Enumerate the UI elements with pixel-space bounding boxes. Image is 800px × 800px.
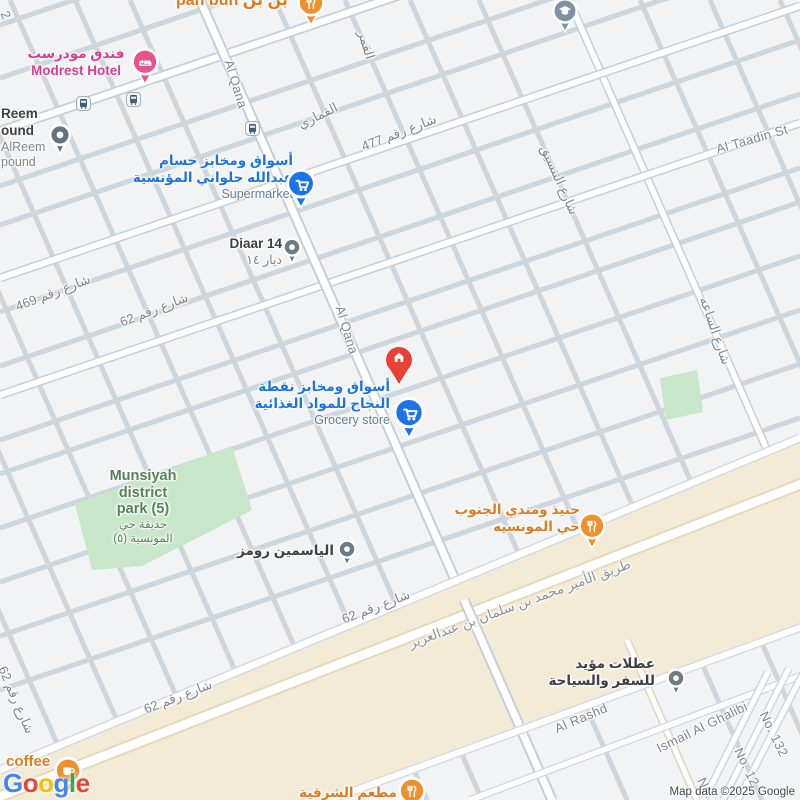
fork-icon bbox=[397, 777, 427, 800]
poi-primary-text: Reem bbox=[1, 106, 45, 123]
poi-secondary-text: المونسية (٥) bbox=[110, 532, 177, 546]
place-dot-icon bbox=[281, 237, 303, 265]
poi-label-otalat-moayad-travel[interactable]: عطلات مؤيدللسفر والسياحة bbox=[548, 656, 655, 690]
bus-stop-icon bbox=[245, 121, 260, 136]
poi-primary-text: للسفر والسياحة bbox=[548, 673, 655, 690]
pin-najah-grocery[interactable] bbox=[392, 397, 426, 440]
poi-primary-text: Modrest Hotel bbox=[27, 63, 124, 80]
bed-icon bbox=[130, 48, 160, 86]
street-label-street-469: شارع رقم 469 bbox=[13, 271, 92, 314]
poi-primary-text: Munsiyah bbox=[110, 468, 177, 485]
pin-otalat-moayad-travel[interactable] bbox=[665, 668, 687, 696]
google-logo-letter: G bbox=[3, 768, 23, 798]
poi-label-pan-bun[interactable]: pan bun بن بن bbox=[176, 0, 288, 11]
poi-primary-text: حي المونسيه bbox=[455, 519, 580, 536]
poi-label-hussam-supermarket[interactable]: أسواق ومخابز حسامعبدالله حلواني المؤنسية… bbox=[133, 153, 293, 202]
poi-primary-text: ound bbox=[1, 123, 45, 140]
street-label-al-taadin: Al Taadin St bbox=[714, 122, 789, 157]
pin-home-property[interactable] bbox=[383, 342, 415, 385]
poi-primary-text: عبدالله حلواني المؤنسية bbox=[133, 170, 293, 187]
poi-label-eastern-restaurant[interactable]: مطعم الشرقية bbox=[299, 785, 397, 800]
place-dot-icon bbox=[336, 539, 358, 567]
street-label-al-qana-north: Al Qana bbox=[222, 58, 251, 110]
poi-label-diaar-14[interactable]: Diaar 14ديار ١٤ bbox=[229, 236, 282, 269]
poi-label-alreem-compound[interactable]: ReemoundAlReempound bbox=[1, 106, 45, 171]
street-label-street-partial-2: 2 bbox=[0, 8, 14, 21]
pin-school[interactable] bbox=[551, 0, 579, 33]
street-label-prince-mohammed-bin-salman-road: طريق الأمير محمد بن سلمان بن عبدالعزيز bbox=[407, 556, 634, 651]
poi-primary-text: الياسمين رومز bbox=[237, 543, 334, 560]
street-label-al-qana-south: Al Qana bbox=[333, 304, 362, 356]
bus-stop-3[interactable] bbox=[245, 121, 260, 136]
poi-secondary-text: حديقة حي bbox=[110, 518, 177, 532]
street-label-street-62-d: شارع رقم 62 bbox=[340, 587, 413, 628]
grad-icon bbox=[551, 0, 579, 33]
poi-primary-text: فندق مودرست bbox=[27, 46, 124, 63]
poi-primary-text: Diaar 14 bbox=[229, 236, 282, 253]
poi-label-najah-grocery[interactable]: أسواق ومخابز نقطةالنجاح للمواد الغذائيةG… bbox=[255, 379, 390, 428]
poi-secondary-text: ديار ١٤ bbox=[229, 253, 282, 269]
street-label-al-qamar: القمر bbox=[354, 29, 378, 61]
google-logo-letter: e bbox=[76, 768, 90, 798]
fork-icon bbox=[296, 0, 326, 27]
map-canvas[interactable]: القمرالقماريشارع رقم 477Al Qanaشارع التن… bbox=[0, 0, 800, 800]
poi-secondary-text: AlReem bbox=[1, 140, 45, 156]
google-logo-letter: g bbox=[54, 768, 69, 798]
home-pin-icon bbox=[383, 342, 415, 385]
place-dot-icon bbox=[665, 668, 687, 696]
cart-icon bbox=[392, 397, 426, 440]
street-label-al-tansiq: شارع التنسيق bbox=[537, 143, 582, 217]
poi-primary-text: pan bun بن بن bbox=[176, 0, 288, 11]
poi-secondary-text: Supermarket bbox=[133, 187, 293, 203]
poi-label-munsiyah-district-park[interactable]: Munsiyahdistrictpark (5)حديقة حيالمونسية… bbox=[110, 468, 177, 547]
poi-secondary-text: Grocery store bbox=[255, 413, 390, 429]
street-label-ismail-al-ghalibi: Ismail Al Ghalibi bbox=[654, 698, 750, 755]
pin-pan-bun[interactable] bbox=[296, 0, 326, 27]
google-logo-letter: l bbox=[69, 768, 76, 798]
bus-stop-icon bbox=[126, 92, 141, 107]
pin-modrest-hotel[interactable] bbox=[130, 48, 160, 86]
place-dot-icon bbox=[47, 123, 73, 156]
bus-stop-icon bbox=[76, 96, 91, 111]
cart-icon bbox=[285, 169, 317, 209]
poi-primary-text: أسواق ومخابز نقطة bbox=[255, 379, 390, 396]
pin-hussam-supermarket[interactable] bbox=[285, 169, 317, 209]
poi-primary-text: مطعم الشرقية bbox=[299, 785, 397, 800]
street-label-street-62-b: شارع رقم 62 bbox=[0, 664, 37, 736]
pin-alreem-compound[interactable] bbox=[47, 123, 73, 156]
google-logo[interactable]: Google bbox=[3, 768, 90, 799]
pin-yasmin-rooms[interactable] bbox=[336, 539, 358, 567]
street-label-al-saah: شارع الساعه bbox=[696, 295, 734, 367]
poi-primary-text: عطلات مؤيد bbox=[548, 656, 655, 673]
labels-overlay: القمرالقماريشارع رقم 477Al Qanaشارع التن… bbox=[0, 0, 800, 800]
map-attribution: Map data ©2025 Google bbox=[670, 786, 795, 798]
poi-primary-text: النجاح للمواد الغذائية bbox=[255, 396, 390, 413]
bus-stop-1[interactable] bbox=[76, 96, 91, 111]
poi-label-haneeth-mandi-south[interactable]: حنيذ ومندي الجنوبحي المونسيه bbox=[455, 502, 580, 536]
street-label-street-62-c: شارع رقم 62 bbox=[142, 677, 215, 718]
google-logo-letter: o bbox=[23, 768, 38, 798]
street-label-al-rashd: Al Rashd bbox=[552, 700, 609, 736]
fork-icon bbox=[577, 512, 607, 550]
pin-diaar-14[interactable] bbox=[281, 237, 303, 265]
bus-stop-2[interactable] bbox=[126, 92, 141, 107]
pin-haneeth-mandi-south[interactable] bbox=[577, 512, 607, 550]
poi-label-modrest-hotel[interactable]: فندق مودرستModrest Hotel bbox=[27, 46, 124, 80]
poi-primary-text: حنيذ ومندي الجنوب bbox=[455, 502, 580, 519]
poi-label-yasmin-rooms[interactable]: الياسمين رومز bbox=[237, 543, 334, 560]
poi-secondary-text: pound bbox=[1, 155, 45, 171]
poi-primary-text: district bbox=[110, 485, 177, 502]
google-logo-letter: o bbox=[38, 768, 53, 798]
pin-eastern-restaurant[interactable] bbox=[397, 777, 427, 800]
street-label-no-12: No. 12 bbox=[731, 745, 762, 788]
poi-primary-text: park (5) bbox=[110, 501, 177, 518]
street-label-no-132: No. 132 bbox=[757, 709, 792, 759]
poi-primary-text: أسواق ومخابز حسام bbox=[133, 153, 293, 170]
street-label-street-477: شارع رقم 477 bbox=[359, 111, 438, 154]
street-label-al-qamari: القماري bbox=[296, 100, 341, 133]
street-label-street-62-a: شارع رقم 62 bbox=[118, 290, 191, 331]
